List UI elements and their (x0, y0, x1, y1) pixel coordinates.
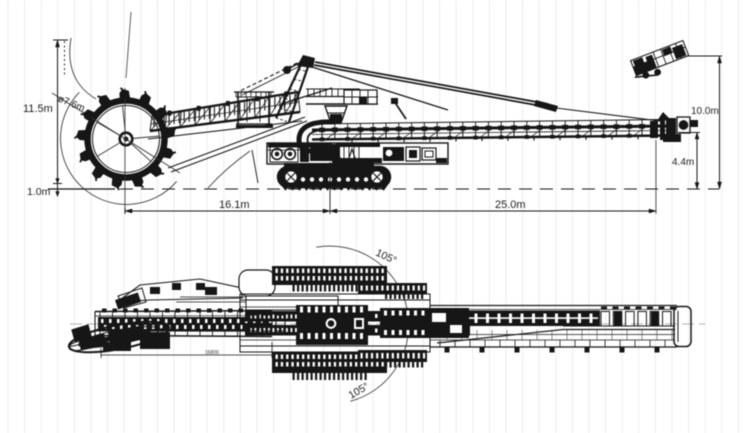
svg-text:105°: 105° (374, 247, 399, 267)
svg-text:16.1m: 16.1m (219, 199, 250, 211)
svg-text:ø7.6m: ø7.6m (56, 94, 86, 115)
svg-text:10.0m: 10.0m (691, 106, 719, 117)
svg-text:1.0m: 1.0m (27, 186, 51, 198)
svg-text:16800: 16800 (205, 350, 219, 356)
svg-text:11.5m: 11.5m (23, 103, 53, 115)
svg-text:25.0m: 25.0m (495, 199, 526, 211)
svg-text:4.4m: 4.4m (672, 157, 694, 168)
